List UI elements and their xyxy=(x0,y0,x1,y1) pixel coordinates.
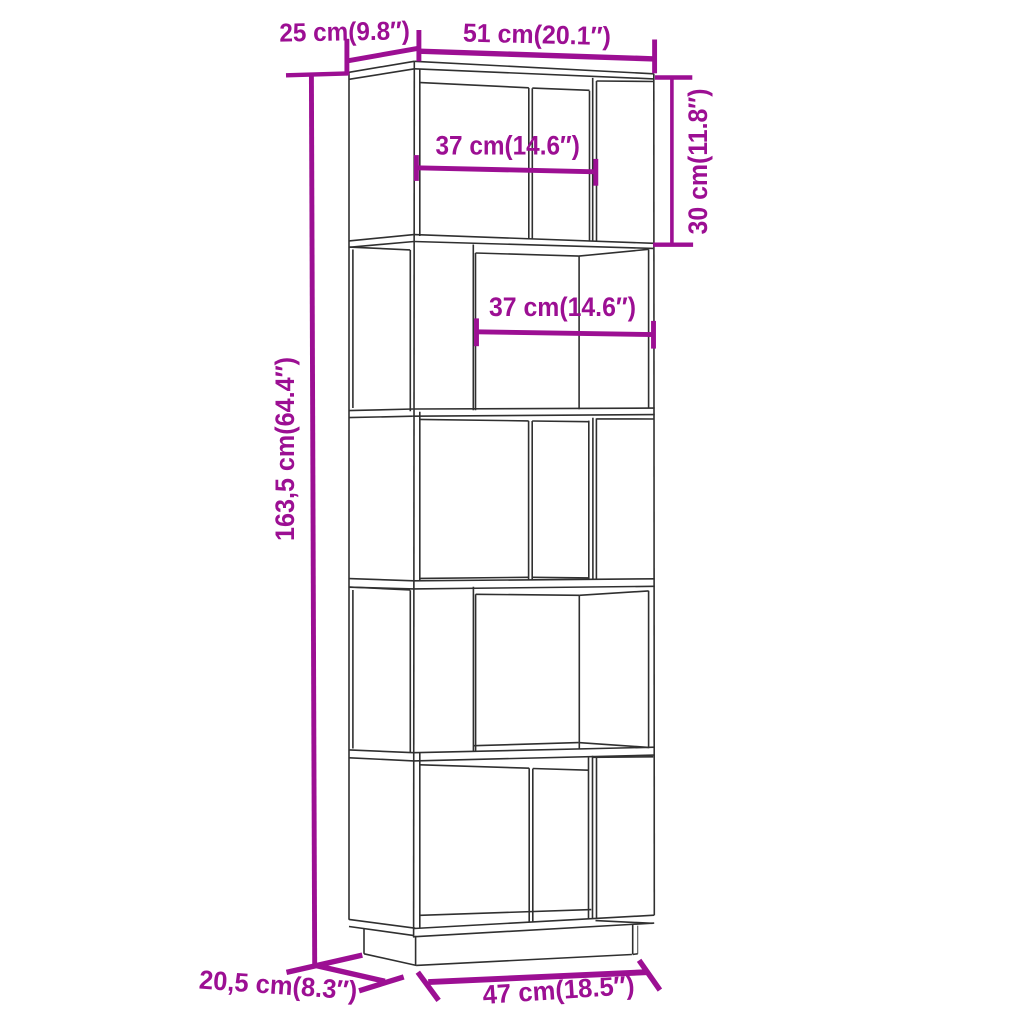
svg-text:163,5 cm(64.4″): 163,5 cm(64.4″) xyxy=(270,357,300,541)
svg-text:37 cm(14.6″): 37 cm(14.6″) xyxy=(489,292,636,322)
svg-text:25 cm(9.8″): 25 cm(9.8″) xyxy=(279,15,410,47)
svg-text:51 cm(20.1″): 51 cm(20.1″) xyxy=(463,18,612,52)
svg-text:30 cm(11.8″): 30 cm(11.8″) xyxy=(683,89,713,235)
svg-text:37 cm(14.6″): 37 cm(14.6″) xyxy=(436,131,580,161)
